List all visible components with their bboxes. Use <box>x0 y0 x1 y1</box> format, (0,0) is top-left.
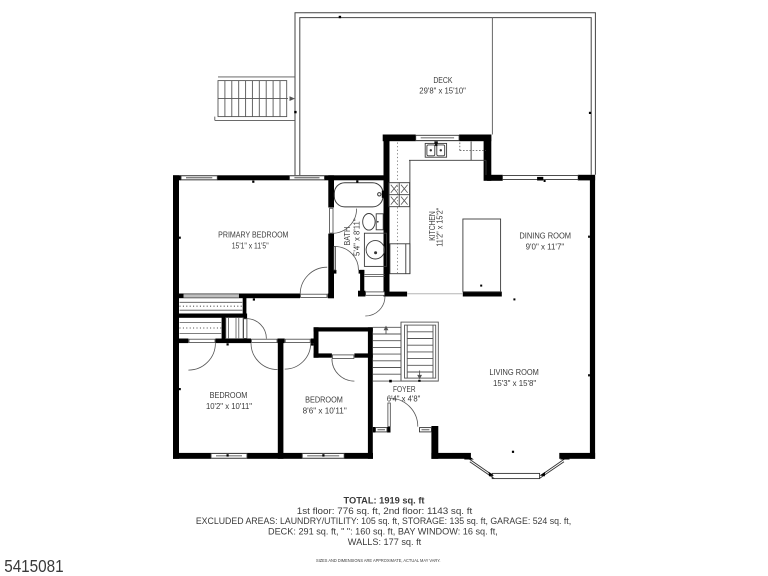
svg-text:9'0" x 11'7": 9'0" x 11'7" <box>526 242 565 251</box>
svg-text:WALLS: 177 sq. ft: WALLS: 177 sq. ft <box>348 537 422 547</box>
svg-text:PRIMARY BEDROOM: PRIMARY BEDROOM <box>218 230 288 239</box>
svg-text:15'3" x 15'8": 15'3" x 15'8" <box>493 379 536 388</box>
svg-text:DINING ROOM: DINING ROOM <box>519 232 571 241</box>
svg-text:LIVING ROOM: LIVING ROOM <box>489 368 539 377</box>
svg-text:6'4" x 4'8": 6'4" x 4'8" <box>387 395 421 404</box>
svg-text:TOTAL: 1919 sq. ft: TOTAL: 1919 sq. ft <box>344 495 425 505</box>
svg-text:BATH: BATH <box>343 227 352 246</box>
svg-text:FOYER: FOYER <box>393 385 416 394</box>
svg-text:5'4" x 8'11": 5'4" x 8'11" <box>352 218 361 256</box>
svg-text:8'6" x 10'11": 8'6" x 10'11" <box>303 406 347 415</box>
svg-text:DECK: DECK <box>433 76 453 85</box>
svg-text:29'8" x 15'10": 29'8" x 15'10" <box>419 86 466 95</box>
svg-text:BEDROOM: BEDROOM <box>305 396 343 405</box>
svg-text:5415081: 5415081 <box>4 556 64 576</box>
svg-text:EXCLUDED AREAS: LAUNDRY/UTILIT: EXCLUDED AREAS: LAUNDRY/UTILITY: 105 sq.… <box>196 516 571 526</box>
svg-text:BEDROOM: BEDROOM <box>210 391 248 400</box>
svg-text:11'2" x 15'2": 11'2" x 15'2" <box>435 208 444 247</box>
svg-text:15'1" x 11'5": 15'1" x 11'5" <box>232 241 269 250</box>
svg-text:10'2" x 10'11": 10'2" x 10'11" <box>206 402 252 411</box>
svg-text:1st floor: 776 sq. ft, 2nd flo: 1st floor: 776 sq. ft, 2nd floor: 1143 s… <box>297 506 473 516</box>
svg-text:SIZES AND DIMENSIONS ARE APPRO: SIZES AND DIMENSIONS ARE APPROXIMATE, AC… <box>316 558 441 563</box>
svg-text:DECK: 291 sq. ft, " ": 160 sq.: DECK: 291 sq. ft, " ": 160 sq. ft, BAY W… <box>268 527 498 537</box>
